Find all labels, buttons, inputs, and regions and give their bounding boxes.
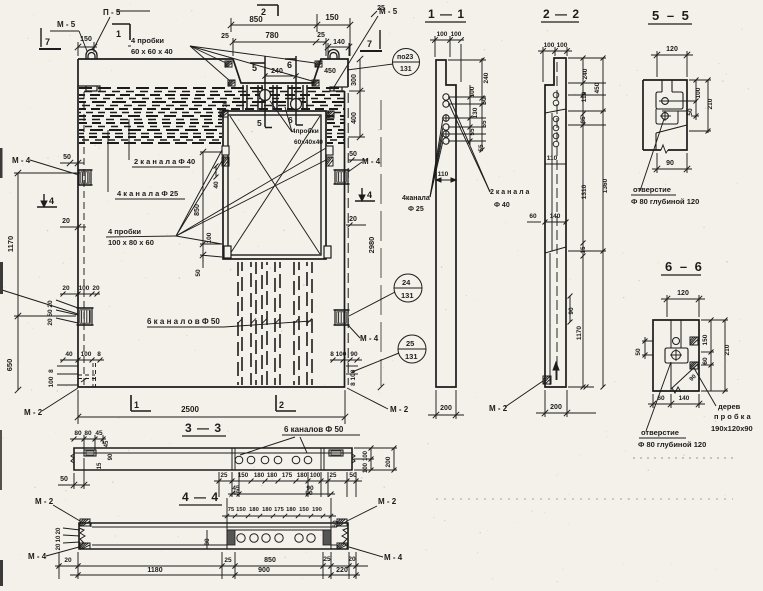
svg-text:200: 200 (440, 405, 452, 412)
svg-text:131: 131 (405, 352, 418, 361)
svg-text:7: 7 (45, 37, 50, 47)
svg-text:150: 150 (299, 507, 309, 513)
svg-text:90: 90 (666, 160, 674, 167)
svg-text:180: 180 (249, 507, 259, 513)
svg-text:6 каналов Ф 50: 6 каналов Ф 50 (284, 425, 344, 434)
svg-text:М - 4: М - 4 (12, 156, 31, 165)
svg-text:120: 120 (677, 290, 689, 297)
svg-text:2: 2 (279, 400, 284, 410)
svg-text:180: 180 (267, 472, 278, 479)
svg-text:175: 175 (282, 472, 293, 479)
svg-text:7: 7 (367, 39, 372, 49)
svg-text:100: 100 (544, 42, 555, 49)
svg-text:М - 4: М - 4 (360, 334, 379, 343)
svg-text:85: 85 (580, 116, 587, 124)
svg-text:60: 60 (332, 520, 339, 528)
svg-text:150: 150 (702, 334, 709, 345)
svg-text:М - 4: М - 4 (362, 157, 381, 166)
svg-text:20: 20 (348, 556, 356, 563)
svg-text:450: 450 (324, 68, 336, 75)
svg-text:80: 80 (74, 430, 82, 437)
svg-text:2980: 2980 (367, 237, 376, 254)
svg-text:М - 5: М - 5 (57, 20, 76, 29)
svg-text:1360: 1360 (602, 178, 609, 193)
svg-text:25: 25 (330, 472, 337, 479)
svg-text:240: 240 (582, 68, 589, 79)
svg-text:100: 100 (310, 472, 321, 479)
svg-text:2 к а н а л а: 2 к а н а л а (490, 189, 530, 196)
svg-text:2500: 2500 (181, 405, 199, 414)
svg-text:25: 25 (224, 557, 232, 564)
svg-text:15: 15 (97, 462, 103, 469)
svg-text:100: 100 (451, 31, 462, 38)
svg-text:М - 2: М - 2 (390, 405, 409, 414)
svg-text:450: 450 (594, 82, 601, 93)
svg-text:10: 10 (56, 535, 62, 542)
svg-text:55: 55 (478, 144, 485, 152)
svg-text:25: 25 (323, 556, 331, 563)
svg-text:24: 24 (402, 278, 411, 287)
svg-text:отверстие: отверстие (633, 185, 671, 194)
svg-text:210: 210 (707, 98, 714, 109)
svg-text:180: 180 (254, 472, 265, 479)
svg-text:20: 20 (47, 318, 54, 326)
svg-text:М - 2: М - 2 (35, 497, 54, 506)
svg-text:140: 140 (333, 39, 345, 46)
svg-text:175: 175 (274, 507, 284, 513)
svg-text:75: 75 (228, 507, 235, 513)
svg-text:210: 210 (724, 344, 731, 355)
svg-text:120: 120 (666, 46, 678, 53)
svg-text:П - 5: П - 5 (103, 8, 121, 17)
svg-text:2 — 2: 2 — 2 (543, 7, 580, 21)
svg-text:20: 20 (92, 285, 100, 292)
svg-text:45: 45 (232, 490, 240, 497)
svg-text:М - 2: М - 2 (378, 497, 397, 506)
svg-text:130: 130 (472, 107, 479, 118)
svg-text:60: 60 (702, 357, 709, 365)
svg-text:240: 240 (483, 72, 490, 83)
svg-text:900: 900 (258, 567, 270, 574)
svg-text:5 – 5: 5 – 5 (652, 8, 691, 23)
svg-text:4 пробки: 4 пробки (131, 36, 164, 45)
svg-text:55: 55 (481, 120, 488, 128)
svg-text:2: 2 (261, 7, 266, 17)
svg-text:25: 25 (221, 33, 229, 40)
svg-text:40: 40 (65, 351, 73, 358)
svg-text:1: 1 (134, 400, 139, 410)
svg-text:Ф 80 глубиной 120: Ф 80 глубиной 120 (638, 440, 706, 449)
svg-text:100: 100 (469, 86, 476, 97)
svg-text:6: 6 (287, 60, 292, 70)
svg-text:90: 90 (350, 351, 358, 358)
svg-text:45: 45 (95, 430, 103, 437)
svg-text:100: 100 (206, 232, 213, 243)
svg-text:Ф 25: Ф 25 (408, 206, 424, 213)
svg-text:4пробки: 4пробки (292, 127, 319, 135)
svg-text:90: 90 (568, 307, 575, 315)
svg-text:дерев: дерев (718, 402, 741, 411)
svg-text:20: 20 (56, 527, 62, 534)
svg-text:100: 100 (437, 31, 448, 38)
svg-text:110: 110 (581, 91, 588, 102)
svg-text:60: 60 (529, 213, 537, 220)
svg-text:240: 240 (271, 68, 283, 75)
svg-text:150: 150 (325, 13, 339, 22)
svg-text:50: 50 (481, 97, 488, 105)
svg-text:15: 15 (580, 246, 587, 254)
svg-text:20: 20 (64, 557, 72, 564)
svg-text:100: 100 (557, 42, 568, 49)
svg-text:40: 40 (213, 181, 220, 189)
svg-text:20: 20 (62, 285, 70, 292)
svg-text:55: 55 (469, 128, 476, 136)
svg-text:30: 30 (223, 100, 229, 107)
svg-text:25: 25 (406, 339, 414, 348)
svg-text:25: 25 (317, 32, 325, 39)
svg-text:50: 50 (687, 108, 694, 116)
svg-text:25: 25 (221, 472, 228, 479)
svg-text:8: 8 (48, 369, 55, 373)
svg-text:4: 4 (367, 190, 372, 200)
svg-text:20: 20 (62, 218, 70, 225)
svg-text:50: 50 (47, 309, 54, 317)
svg-text:200: 200 (550, 404, 562, 411)
svg-text:80: 80 (84, 430, 92, 437)
svg-text:4канала: 4канала (402, 195, 430, 202)
svg-text:по23: по23 (397, 54, 413, 61)
svg-text:180: 180 (297, 472, 308, 479)
svg-text:1180: 1180 (147, 567, 162, 574)
svg-text:300: 300 (351, 74, 358, 86)
svg-text:60 х 60 х 40: 60 х 60 х 40 (131, 47, 173, 56)
svg-text:М - 2: М - 2 (24, 408, 43, 417)
svg-text:1170: 1170 (6, 236, 15, 252)
svg-text:850: 850 (194, 204, 201, 216)
svg-text:5: 5 (252, 63, 257, 73)
svg-text:180: 180 (262, 507, 272, 513)
svg-text:8: 8 (350, 382, 357, 386)
svg-text:6 – 6: 6 – 6 (665, 259, 704, 274)
svg-text:20: 20 (349, 216, 357, 223)
svg-text:1 — 1: 1 — 1 (428, 7, 465, 21)
svg-text:М - 2: М - 2 (489, 404, 508, 413)
svg-text:60х40х40: 60х40х40 (294, 139, 323, 146)
svg-text:131: 131 (401, 291, 414, 300)
svg-text:3 — 3: 3 — 3 (185, 421, 222, 435)
svg-text:5: 5 (257, 118, 262, 128)
svg-text:100: 100 (695, 87, 702, 98)
svg-text:780: 780 (265, 31, 279, 40)
svg-text:50: 50 (349, 151, 357, 158)
svg-text:1170: 1170 (576, 326, 583, 340)
svg-text:20: 20 (47, 300, 54, 308)
svg-text:110: 110 (547, 155, 558, 162)
svg-text:4: 4 (49, 196, 54, 206)
svg-text:90: 90 (108, 453, 114, 460)
svg-text:4 к а н а л а Ф 25: 4 к а н а л а Ф 25 (117, 189, 178, 198)
svg-text:8: 8 (330, 351, 334, 358)
svg-text:50: 50 (635, 348, 642, 356)
svg-text:100 х 80 х 60: 100 х 80 х 60 (108, 238, 154, 247)
svg-text:180: 180 (286, 507, 296, 513)
svg-text:100: 100 (48, 376, 55, 387)
svg-text:190: 190 (312, 507, 322, 513)
svg-text:1310: 1310 (581, 184, 588, 199)
svg-text:4 пробки: 4 пробки (108, 227, 141, 236)
svg-text:50: 50 (63, 154, 71, 161)
svg-text:190х120х90: 190х120х90 (711, 424, 753, 433)
svg-text:400: 400 (351, 112, 358, 124)
svg-text:М - 4: М - 4 (28, 552, 47, 561)
svg-text:4 — 4: 4 — 4 (182, 490, 219, 504)
svg-text:М - 4: М - 4 (384, 553, 403, 562)
svg-text:110: 110 (438, 171, 449, 178)
svg-text:80: 80 (204, 538, 211, 546)
svg-text:1: 1 (116, 29, 121, 39)
svg-text:140: 140 (679, 395, 690, 402)
svg-text:100: 100 (336, 351, 347, 358)
svg-text:200: 200 (385, 456, 392, 467)
svg-text:Ф 80 глубиной 120: Ф 80 глубиной 120 (631, 197, 699, 206)
svg-text:50: 50 (195, 269, 202, 277)
svg-text:850: 850 (264, 557, 276, 564)
svg-text:100: 100 (363, 462, 369, 473)
svg-text:140: 140 (550, 213, 561, 220)
svg-text:220: 220 (336, 567, 348, 574)
svg-text:131: 131 (400, 66, 412, 73)
svg-text:650: 650 (5, 359, 14, 372)
svg-text:150: 150 (236, 507, 246, 513)
svg-text:50: 50 (60, 476, 68, 483)
svg-text:6 к а н а л о в Ф 50: 6 к а н а л о в Ф 50 (147, 317, 220, 326)
svg-text:100: 100 (81, 351, 92, 358)
svg-text:Ф 40: Ф 40 (494, 202, 510, 209)
svg-text:45: 45 (104, 440, 110, 447)
svg-text:п р о б к а: п р о б к а (714, 412, 751, 421)
svg-text:2 к а н а л а Ф 40: 2 к а н а л а Ф 40 (134, 157, 195, 166)
svg-text:М - 5: М - 5 (379, 7, 398, 16)
svg-text:8: 8 (97, 351, 101, 358)
svg-text:100: 100 (79, 285, 90, 292)
